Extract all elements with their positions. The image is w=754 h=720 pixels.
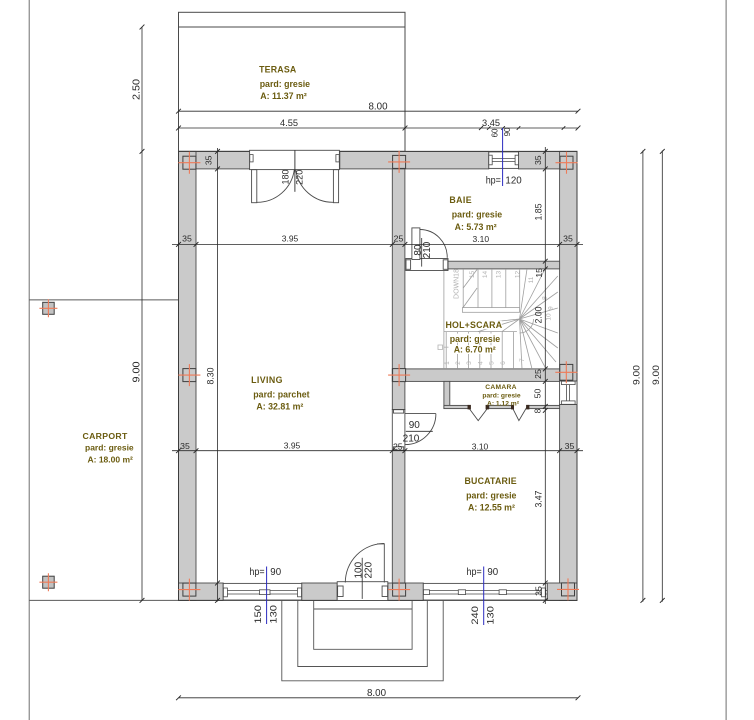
svg-text:25: 25 [393, 441, 403, 451]
svg-text:A: 6.70 m²: A: 6.70 m² [454, 344, 496, 354]
svg-text:8: 8 [532, 408, 542, 413]
svg-text:13: 13 [496, 271, 503, 279]
svg-text:pard: gresie: pard: gresie [450, 334, 500, 344]
svg-text:2: 2 [455, 361, 462, 365]
svg-text:A: 12.55 m²: A: 12.55 m² [468, 502, 515, 512]
svg-text:60: 60 [491, 128, 500, 137]
svg-text:CARPORT: CARPORT [83, 431, 128, 441]
svg-text:90: 90 [487, 566, 498, 578]
svg-text:15: 15 [534, 268, 544, 278]
svg-text:15: 15 [469, 271, 476, 279]
svg-text:7: 7 [519, 358, 526, 362]
svg-text:3: 3 [466, 361, 473, 365]
svg-text:12: 12 [515, 271, 522, 279]
svg-text:LIVING: LIVING [251, 375, 283, 385]
svg-text:pard: gresie: pard: gresie [452, 209, 502, 219]
svg-text:DOWN18: DOWN18 [454, 269, 461, 299]
svg-text:220: 220 [295, 170, 305, 185]
svg-text:8.00: 8.00 [369, 102, 388, 113]
svg-text:240: 240 [470, 606, 481, 625]
svg-text:9.00: 9.00 [132, 361, 143, 382]
svg-text:120: 120 [505, 175, 521, 187]
svg-text:A: 11.37 m²: A: 11.37 m² [260, 91, 307, 101]
svg-text:6: 6 [500, 361, 507, 365]
svg-text:150: 150 [253, 605, 264, 624]
svg-text:90: 90 [409, 420, 421, 431]
svg-text:9: 9 [548, 306, 555, 310]
svg-text:4: 4 [477, 361, 484, 365]
svg-text:8.30: 8.30 [206, 368, 216, 385]
svg-text:2.50: 2.50 [132, 79, 143, 100]
svg-text:35: 35 [180, 441, 190, 451]
svg-text:pard: gresie: pard: gresie [466, 491, 516, 501]
svg-text:hp=: hp= [486, 175, 501, 187]
svg-text:A: 5.73 m²: A: 5.73 m² [455, 222, 497, 232]
svg-text:BUCATARIE: BUCATARIE [465, 476, 517, 486]
svg-text:14: 14 [482, 271, 489, 279]
svg-text:35: 35 [565, 441, 575, 451]
svg-text:CAMARA: CAMARA [485, 384, 517, 391]
svg-text:5: 5 [489, 361, 496, 365]
svg-text:3.95: 3.95 [282, 233, 299, 243]
svg-text:90: 90 [503, 127, 512, 136]
svg-text:35: 35 [182, 234, 192, 244]
svg-text:hp=: hp= [249, 566, 264, 578]
svg-text:1: 1 [444, 361, 451, 365]
svg-text:35: 35 [533, 586, 543, 596]
svg-text:35: 35 [203, 155, 213, 165]
svg-text:3.95: 3.95 [284, 441, 301, 451]
svg-text:2.00: 2.00 [533, 307, 543, 324]
svg-text:pard: parchet: pard: parchet [253, 389, 309, 399]
svg-text:130: 130 [269, 605, 280, 624]
svg-text:BAIE: BAIE [449, 195, 472, 205]
svg-text:90: 90 [270, 566, 281, 578]
svg-text:TERASA: TERASA [259, 65, 297, 75]
svg-text:HOL+SCARA: HOL+SCARA [446, 320, 503, 330]
svg-text:10: 10 [546, 313, 553, 321]
svg-text:25: 25 [394, 234, 404, 244]
svg-text:220: 220 [364, 561, 375, 578]
svg-text:50: 50 [532, 389, 542, 399]
svg-text:9.00: 9.00 [651, 365, 662, 385]
svg-text:35: 35 [533, 155, 543, 165]
svg-text:25: 25 [533, 369, 543, 379]
svg-text:A: 1.12 m²: A: 1.12 m² [487, 400, 520, 407]
svg-text:A: 18.00 m²: A: 18.00 m² [88, 454, 134, 464]
svg-text:3.10: 3.10 [473, 234, 490, 244]
svg-text:pard: gresie: pard: gresie [482, 392, 521, 399]
svg-text:9.00: 9.00 [631, 365, 642, 385]
svg-text:180: 180 [280, 169, 290, 184]
svg-text:210: 210 [422, 241, 433, 258]
svg-text:130: 130 [485, 606, 496, 625]
svg-text:1.85: 1.85 [533, 204, 543, 221]
svg-text:pard: gresie: pard: gresie [260, 79, 310, 89]
svg-text:35: 35 [563, 234, 573, 244]
svg-text:8.00: 8.00 [367, 688, 386, 699]
svg-text:3.45: 3.45 [482, 118, 500, 128]
svg-text:3.10: 3.10 [472, 441, 489, 451]
svg-text:210: 210 [403, 433, 420, 444]
svg-text:4.55: 4.55 [280, 118, 298, 128]
svg-text:A: 32.81 m²: A: 32.81 m² [256, 402, 303, 412]
svg-text:hp=: hp= [467, 566, 482, 578]
svg-text:pard: gresie: pard: gresie [85, 442, 134, 452]
svg-text:3.47: 3.47 [533, 491, 543, 508]
